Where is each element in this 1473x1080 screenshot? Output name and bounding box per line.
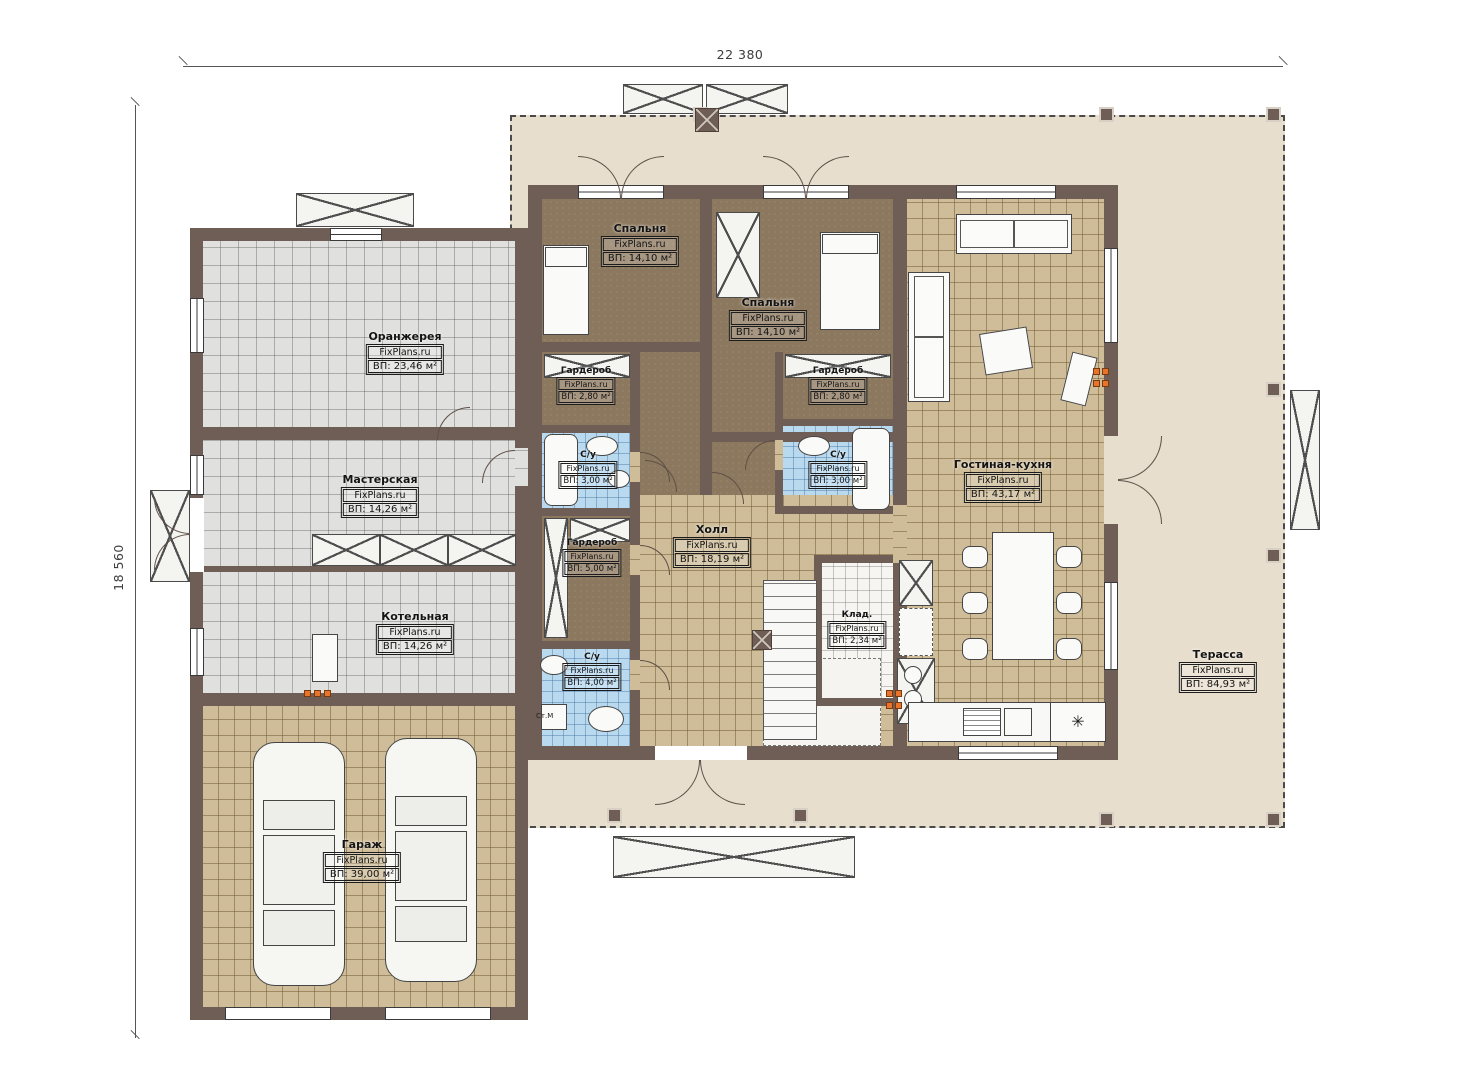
chair <box>1056 638 1082 660</box>
room-label-workshop: Мастерская FixPlans.ru ВП: 14,26 м² <box>341 473 419 518</box>
room-name: С/у <box>562 652 621 662</box>
garage-door <box>225 1007 331 1020</box>
kitchen-appliance <box>1004 708 1032 736</box>
watermark: FixPlans.ru <box>368 346 442 359</box>
dimension-tick <box>178 56 187 65</box>
room-area: ВП: 2,80 м² <box>558 391 613 403</box>
living-room-window <box>956 185 1056 199</box>
dimension-line-top <box>183 66 1283 67</box>
terrace-column <box>1099 812 1114 827</box>
wall <box>203 566 515 572</box>
chair <box>1056 592 1082 614</box>
terrace-column <box>1266 548 1281 563</box>
doorway-opening <box>515 448 528 486</box>
wall <box>775 352 783 512</box>
room-info-box: FixPlans.ru ВП: 14,26 м² <box>341 487 419 518</box>
watermark: FixPlans.ru <box>675 539 749 552</box>
stove-burner <box>895 690 902 697</box>
room-info-box: FixPlans.ru ВП: 84,93 м² <box>1179 662 1257 693</box>
room-area: ВП: 14,10 м² <box>731 326 805 339</box>
kitchen-window <box>1104 582 1118 670</box>
wall <box>783 419 893 426</box>
room-area: ВП: 2,34 м² <box>829 635 884 647</box>
doorway-opening <box>630 452 640 482</box>
watermark: FixPlans.ru <box>564 665 619 676</box>
room-name: Гостиная-кухня <box>954 458 1052 471</box>
car-windshield <box>395 796 467 826</box>
watermark: FixPlans.ru <box>564 551 619 562</box>
room-name: Котельная <box>376 610 454 623</box>
washing-machine-label: Ст.М <box>536 712 553 720</box>
room-label-living-kitchen: Гостиная-кухня FixPlans.ru ВП: 43,17 м² <box>954 458 1052 503</box>
room-name: С/у <box>808 450 867 460</box>
room-info-box: FixPlans.ru ВП: 2,80 м² <box>808 377 867 405</box>
room-name: Гараж <box>323 838 401 851</box>
terrace-column <box>1099 107 1114 122</box>
terrace-column <box>607 808 622 823</box>
chimney <box>695 108 719 132</box>
terrace-column <box>1266 812 1281 827</box>
terrace-steps <box>1290 390 1320 530</box>
terrace-door-opening <box>1104 436 1118 524</box>
doorway-opening <box>630 660 640 690</box>
watermark: FixPlans.ru <box>810 463 865 474</box>
entrance-steps <box>613 836 855 878</box>
fireplace-vent <box>1102 368 1109 375</box>
stove-burner <box>895 702 902 709</box>
watermark: FixPlans.ru <box>1181 664 1255 677</box>
watermark: FixPlans.ru <box>731 312 805 325</box>
sink-basin <box>904 666 922 684</box>
room-name: Спальня <box>601 222 679 235</box>
room-area: ВП: 84,93 м² <box>1181 678 1255 691</box>
sofa-cushions <box>914 276 944 398</box>
fireplace-vent <box>1093 380 1100 387</box>
boiler-vent <box>324 690 331 697</box>
dining-table <box>992 532 1054 660</box>
room-name: Мастерская <box>341 473 419 486</box>
wall <box>814 555 902 563</box>
room-area: ВП: 43,17 м² <box>966 488 1040 501</box>
workshop-shelving <box>448 534 516 566</box>
room-area: ВП: 23,46 м² <box>368 360 442 373</box>
wall <box>528 185 542 760</box>
room-label-storage: Клад. FixPlans.ru ВП: 2,34 м² <box>827 610 886 649</box>
room-label-hall: Холл FixPlans.ru ВП: 18,19 м² <box>673 523 751 568</box>
room-label-wardrobe-1: Гардероб FixPlans.ru ВП: 2,80 м² <box>556 366 615 405</box>
room-area: ВП: 3,00 м² <box>810 475 865 487</box>
dimension-tick <box>1278 56 1287 65</box>
room-label-wardrobe-2: Гардероб FixPlans.ru ВП: 2,80 м² <box>808 366 867 405</box>
room-info-box: FixPlans.ru ВП: 3,00 м² <box>808 461 867 489</box>
room-name: Гардероб <box>808 366 867 376</box>
chimney <box>752 630 772 650</box>
watermark: FixPlans.ru <box>966 474 1040 487</box>
boiler-vent <box>314 690 321 697</box>
closet <box>716 212 760 298</box>
watermark: FixPlans.ru <box>325 854 399 867</box>
workshop-window <box>190 455 204 495</box>
room-area: ВП: 18,19 м² <box>675 553 749 566</box>
chair <box>1056 546 1082 568</box>
room-label-bathroom-1: С/у FixPlans.ru ВП: 3,00 м² <box>558 450 617 489</box>
room-label-bedroom-1: Спальня FixPlans.ru ВП: 14,10 м² <box>601 222 679 267</box>
boiler <box>312 634 338 682</box>
watermark: FixPlans.ru <box>560 463 615 474</box>
doorway-opening <box>630 545 640 575</box>
room-label-bathroom-3: С/у FixPlans.ru ВП: 4,00 м² <box>562 652 621 691</box>
workshop-shelving <box>312 534 380 566</box>
room-info-box: FixPlans.ru ВП: 2,80 м² <box>556 377 615 405</box>
orangery-window <box>190 298 204 353</box>
wall <box>542 641 640 649</box>
terrace-column <box>1266 107 1281 122</box>
doorway-opening <box>893 505 907 563</box>
wardrobe-cabinet <box>544 518 568 638</box>
room-info-box: FixPlans.ru ВП: 4,00 м² <box>562 663 621 691</box>
orangery-floor <box>203 241 515 427</box>
terrace-column <box>1266 382 1281 397</box>
car-rear-window <box>395 906 467 942</box>
room-info-box: FixPlans.ru ВП: 14,10 м² <box>601 236 679 267</box>
living-room-window <box>1104 248 1118 343</box>
room-area: ВП: 2,80 м² <box>810 391 865 403</box>
bed-pillow <box>822 234 878 254</box>
room-name: Клад. <box>827 610 886 620</box>
garage-door <box>385 1007 491 1020</box>
stove-burner <box>886 702 893 709</box>
room-info-box: FixPlans.ru ВП: 39,00 м² <box>323 852 401 883</box>
room-area: ВП: 5,00 м² <box>564 563 619 575</box>
room-name: С/у <box>558 450 617 460</box>
wall <box>542 342 700 352</box>
fireplace-vent <box>1102 380 1109 387</box>
chair <box>962 592 988 614</box>
room-info-box: FixPlans.ru ВП: 2,34 м² <box>827 621 886 649</box>
room-info-box: FixPlans.ru ВП: 43,17 м² <box>964 472 1042 503</box>
wall <box>542 425 640 433</box>
wall <box>542 508 640 516</box>
dimension-width-label: 22 380 <box>700 47 780 62</box>
terrace-column <box>793 808 808 823</box>
toilet <box>588 706 624 732</box>
coffee-table <box>979 327 1033 376</box>
entrance-canopy <box>623 84 703 114</box>
room-label-boiler-room: Котельная FixPlans.ru ВП: 14,26 м² <box>376 610 454 655</box>
room-info-box: FixPlans.ru ВП: 5,00 м² <box>562 549 621 577</box>
main-entrance-opening <box>655 746 747 760</box>
boiler-room-window <box>190 628 204 676</box>
bed-pillow <box>545 247 587 267</box>
wall <box>203 693 515 706</box>
room-info-box: FixPlans.ru ВП: 18,19 м² <box>673 537 751 568</box>
room-area: ВП: 39,00 м² <box>325 868 399 881</box>
room-label-orangery: Оранжерея FixPlans.ru ВП: 23,46 м² <box>366 330 444 375</box>
room-name: Холл <box>673 523 751 536</box>
watermark: FixPlans.ru <box>558 379 613 390</box>
orangery-porch-canopy <box>296 193 414 227</box>
room-name: Спальня <box>729 296 807 309</box>
room-label-wardrobe-3: Гардероб FixPlans.ru ВП: 5,00 м² <box>562 538 621 577</box>
car-rear-window <box>263 910 335 946</box>
room-info-box: FixPlans.ru ВП: 3,00 м² <box>558 461 617 489</box>
wall <box>515 241 528 1007</box>
car-windshield <box>263 800 335 830</box>
room-info-box: FixPlans.ru ВП: 14,26 м² <box>376 624 454 655</box>
room-area: ВП: 4,00 м² <box>564 677 619 689</box>
room-label-terrace: Терасса FixPlans.ru ВП: 84,93 м² <box>1179 648 1257 693</box>
boiler-room-floor <box>203 572 515 693</box>
watermark: FixPlans.ru <box>810 379 865 390</box>
room-area: ВП: 3,00 м² <box>560 475 615 487</box>
workshop-shelving <box>380 534 448 566</box>
room-name: Гардероб <box>562 538 621 548</box>
room-area: ВП: 14,10 м² <box>603 252 677 265</box>
dimension-line-left <box>135 105 136 1038</box>
watermark: FixPlans.ru <box>343 489 417 502</box>
wall <box>700 185 712 495</box>
room-area: ВП: 14,26 м² <box>378 640 452 653</box>
car-roof <box>395 831 467 901</box>
staircase <box>763 580 817 740</box>
fireplace-vent <box>1093 368 1100 375</box>
doorway-opening <box>775 440 783 470</box>
kitchen-cabinet <box>899 608 933 656</box>
room-info-box: FixPlans.ru ВП: 14,10 м² <box>729 310 807 341</box>
dishwasher <box>963 708 1001 736</box>
kitchen-cabinet <box>899 560 933 606</box>
fridge-icon: ✳ <box>1064 712 1092 731</box>
chair <box>962 546 988 568</box>
orangery-door <box>330 228 382 241</box>
chair <box>962 638 988 660</box>
room-label-bathroom-2: С/у FixPlans.ru ВП: 3,00 м² <box>808 450 867 489</box>
watermark: FixPlans.ru <box>378 626 452 639</box>
side-entrance-opening <box>190 498 204 572</box>
room-name: Гардероб <box>556 366 615 376</box>
stove-burner <box>886 690 893 697</box>
boiler-vent <box>304 690 311 697</box>
room-name: Терасса <box>1179 648 1257 661</box>
dimension-height-label: 18 560 <box>111 544 126 591</box>
room-label-garage: Гараж FixPlans.ru ВП: 39,00 м² <box>323 838 401 883</box>
room-name: Оранжерея <box>366 330 444 343</box>
watermark: FixPlans.ru <box>603 238 677 251</box>
room-info-box: FixPlans.ru ВП: 23,46 м² <box>366 344 444 375</box>
room-area: ВП: 14,26 м² <box>343 503 417 516</box>
watermark: FixPlans.ru <box>829 623 884 634</box>
kitchen-window <box>958 746 1058 760</box>
sofa-cushions <box>960 220 1068 248</box>
floor-plan: 22 380 18 560 <box>0 0 1473 1080</box>
room-label-bedroom-2: Спальня FixPlans.ru ВП: 14,10 м² <box>729 296 807 341</box>
